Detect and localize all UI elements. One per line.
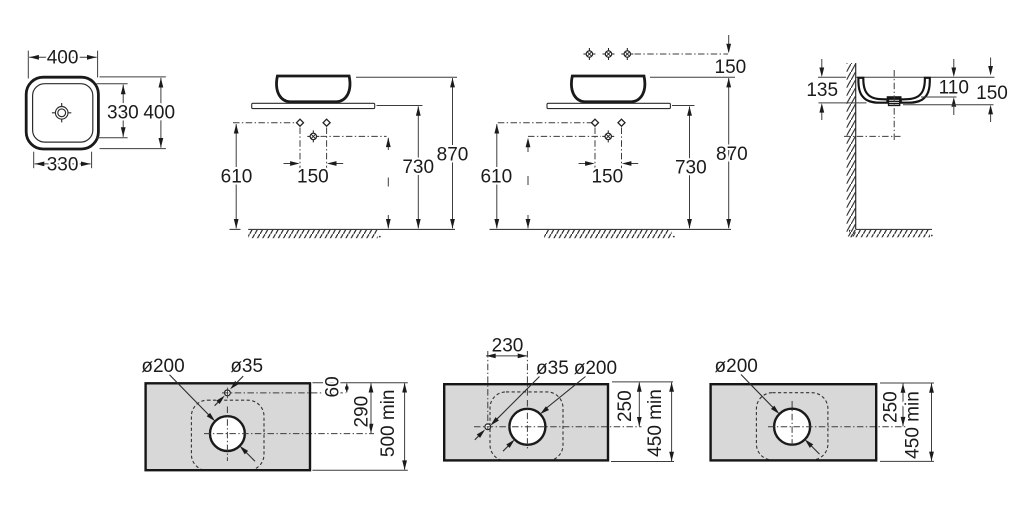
svg-text:ø35: ø35 (230, 356, 263, 377)
svg-text:150: 150 (297, 167, 329, 188)
svg-text:ø200: ø200 (715, 356, 758, 377)
svg-text:330: 330 (107, 103, 139, 124)
svg-text:330: 330 (47, 154, 79, 175)
svg-text:150: 150 (976, 83, 1008, 104)
svg-text:ø200: ø200 (574, 358, 617, 379)
svg-text:135: 135 (806, 80, 838, 101)
svg-text:610: 610 (221, 167, 253, 188)
svg-text:230: 230 (492, 336, 524, 357)
svg-text:450 min: 450 min (645, 389, 666, 457)
svg-text:110: 110 (939, 78, 969, 99)
svg-text:ø35: ø35 (536, 358, 569, 379)
svg-text:150: 150 (591, 166, 623, 187)
svg-text:60: 60 (323, 376, 344, 397)
svg-text:500 min: 500 min (378, 389, 399, 457)
svg-text:610: 610 (480, 167, 512, 188)
svg-text:290: 290 (352, 396, 373, 428)
svg-text:450 min: 450 min (902, 391, 923, 459)
svg-text:ø200: ø200 (141, 356, 184, 377)
svg-text:730: 730 (675, 157, 707, 178)
svg-text:400: 400 (143, 103, 175, 124)
svg-text:730: 730 (402, 157, 434, 178)
svg-text:870: 870 (437, 145, 469, 166)
svg-text:250: 250 (881, 391, 902, 423)
svg-text:250: 250 (615, 390, 636, 422)
svg-text:400: 400 (47, 48, 79, 69)
svg-text:150: 150 (715, 57, 747, 78)
svg-text:870: 870 (716, 144, 748, 165)
